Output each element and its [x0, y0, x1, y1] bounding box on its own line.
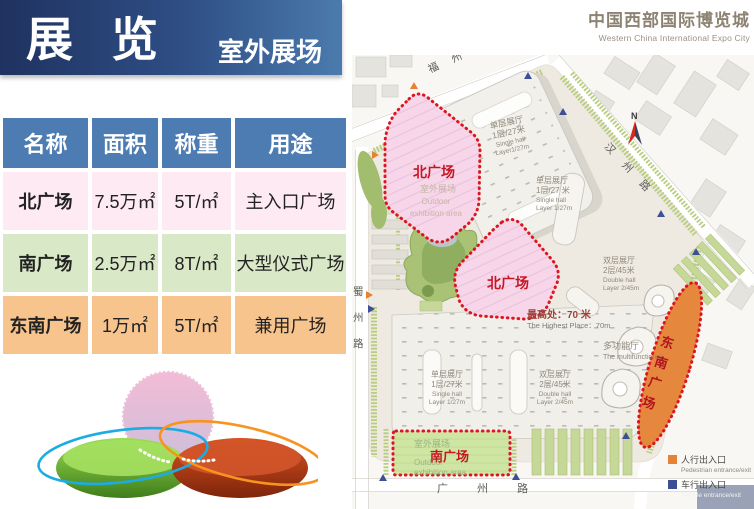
- col-header-area: 面积: [92, 118, 158, 168]
- east-hall-label-spec: 1层/27 米: [536, 185, 570, 195]
- highest-point-cn: 最高处：70 米: [527, 308, 592, 321]
- legend-vehicle-swatch: [668, 480, 677, 489]
- road-label-shuzhou-3: 路: [353, 337, 364, 350]
- brand-name-cn: 中国西部国际博览城: [588, 6, 750, 31]
- table-row-south-use: 大型仪式广场: [235, 234, 346, 292]
- south-double-hall-label-en1: Double hall: [539, 391, 572, 398]
- legend-pedestrian-cn: 人行出入口: [681, 454, 726, 465]
- east-double-hall-label-spec: 2层/45米: [603, 265, 635, 275]
- table-row-southeast-area: 1万㎡: [92, 296, 158, 354]
- plaza-spec-table: 名称 面积 称重 用途 北广场 7.5万㎡ 5T/㎡ 主入口广场 南广场 2.5…: [3, 118, 346, 354]
- red-bowl-rim: [179, 440, 301, 476]
- site-map: 单层展厅 1层/27米 Single hall Layer1/27m 单层展厅 …: [352, 55, 754, 509]
- decorative-bowls-logo: [28, 368, 318, 508]
- south-hall-label-en1: Single hall: [432, 391, 463, 398]
- compass-n-label: N: [631, 111, 638, 121]
- east-hall-label-en1: Single hall: [536, 197, 567, 204]
- south-plaza-sub-en2: exhibition area: [414, 468, 467, 477]
- north-plaza1-sub-en2: exhibition area: [410, 209, 463, 218]
- legend-pedestrian-swatch: [668, 455, 677, 464]
- col-header-name: 名称: [3, 118, 88, 168]
- col-header-load: 称重: [162, 118, 231, 168]
- highest-point-en: The Highest Place：70m: [527, 321, 610, 330]
- table-row-southeast-use: 兼用广场: [235, 296, 346, 354]
- legend-vehicle-cn: 车行出入口: [681, 479, 726, 490]
- table-row-south-name: 南广场: [3, 234, 88, 292]
- road-label-shuzhou-2: 州: [353, 312, 364, 324]
- north-plaza1-sub-en1: Outdoor: [422, 197, 451, 206]
- table-row-southeast-load: 5T/㎡: [162, 296, 231, 354]
- east-double-hall-label-cn: 双层展厅: [603, 256, 635, 265]
- south-hall-label-cn: 单层展厅: [431, 369, 463, 379]
- road-label-guangzhou: 广 州 路: [437, 482, 541, 495]
- east-double-hall-label-en2: Layer 2/45m: [603, 285, 639, 292]
- north-plaza1-label: 北广场: [413, 164, 455, 180]
- page-title: 展览: [26, 1, 196, 70]
- slide-canvas: 展览 室外展场 中国西部国际博览城 Western China Internat…: [0, 0, 754, 509]
- south-hall-label-en2: Layer 1/27m: [429, 399, 465, 406]
- south-double-hall-label-en2: Layer 2/45m: [537, 399, 573, 406]
- legend-vehicle-en: Vehicle entrance/exit: [681, 492, 741, 499]
- table-row-south-area: 2.5万㎡: [92, 234, 158, 292]
- col-header-use: 用途: [235, 118, 346, 168]
- table-row-south-load: 8T/㎡: [162, 234, 231, 292]
- table-row-north-use: 主入口广场: [235, 172, 346, 230]
- multifunction-label-en: The multifunctional: [603, 354, 662, 361]
- south-hall-label-spec: 1层/27米: [431, 379, 463, 389]
- legend-pedestrian-en: Pedestrian entrance/exit: [681, 467, 751, 474]
- multifunction-label-cn: 多功能厅: [603, 340, 639, 351]
- table-row-north-name: 北广场: [3, 172, 88, 230]
- south-double-hall-label-spec: 2层/45米: [539, 379, 571, 389]
- brand-name-en: Western China International Expo City: [588, 33, 750, 43]
- header-banner: 展览 室外展场: [0, 0, 342, 75]
- north-plaza2-label: 北广场: [487, 275, 529, 291]
- table-row-southeast-name: 东南广场: [3, 296, 88, 354]
- east-hall-label-en2: Layer 1/27m: [536, 205, 572, 212]
- south-plaza-sub-cn: 室外展场: [414, 438, 450, 449]
- table-row-north-area: 7.5万㎡: [92, 172, 158, 230]
- brand-logo: 中国西部国际博览城 Western China International Ex…: [588, 6, 750, 43]
- east-double-hall-label-en1: Double hall: [603, 277, 636, 284]
- east-hall-label-cn: 单层展厅: [536, 175, 568, 185]
- table-row-north-load: 5T/㎡: [162, 172, 231, 230]
- north-plaza1-sub-cn: 室外展场: [420, 183, 456, 194]
- page-subtitle: 室外展场: [218, 32, 322, 69]
- south-double-hall-label-cn: 双层展厅: [539, 370, 571, 379]
- road-label-shuzhou-1: 蜀: [353, 286, 364, 298]
- south-plaza-label: 南广场: [430, 449, 469, 464]
